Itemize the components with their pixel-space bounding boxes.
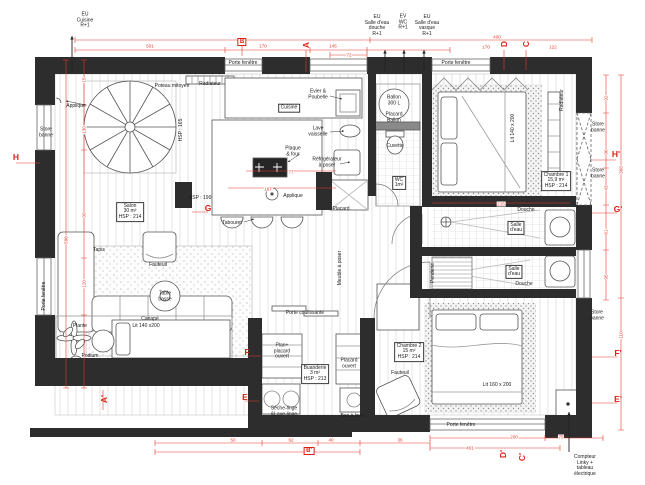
sofa-chaise (58, 232, 94, 332)
armchair-salon (143, 232, 176, 262)
store-banne-right-zone (577, 113, 591, 205)
sink-1 (550, 217, 570, 237)
bar-stools (221, 217, 303, 228)
toilet (386, 131, 404, 154)
window-bottom (430, 419, 545, 430)
pillow-ch2-b (480, 314, 518, 330)
wardrobe-penderie (432, 257, 472, 289)
floor-plan-canvas (0, 0, 645, 485)
sink-2 (550, 261, 570, 281)
pillow-ch2-a (436, 314, 476, 330)
pillow-ch1-b (441, 143, 457, 185)
sliding-door-leaf-a (272, 306, 306, 311)
spiral-staircase (84, 81, 176, 173)
pillow-salon (116, 323, 130, 355)
sliding-door-leaf-b (304, 311, 338, 316)
floor-plan-drawing: EU Cuisine R+1EU Salle d'eau douche R+1E… (0, 0, 645, 485)
ballon-shelf (374, 122, 420, 130)
shower-valve-1 (441, 217, 451, 227)
cooktop (253, 158, 287, 177)
pillow-ch1-a (441, 97, 457, 139)
water-heater (379, 89, 409, 119)
